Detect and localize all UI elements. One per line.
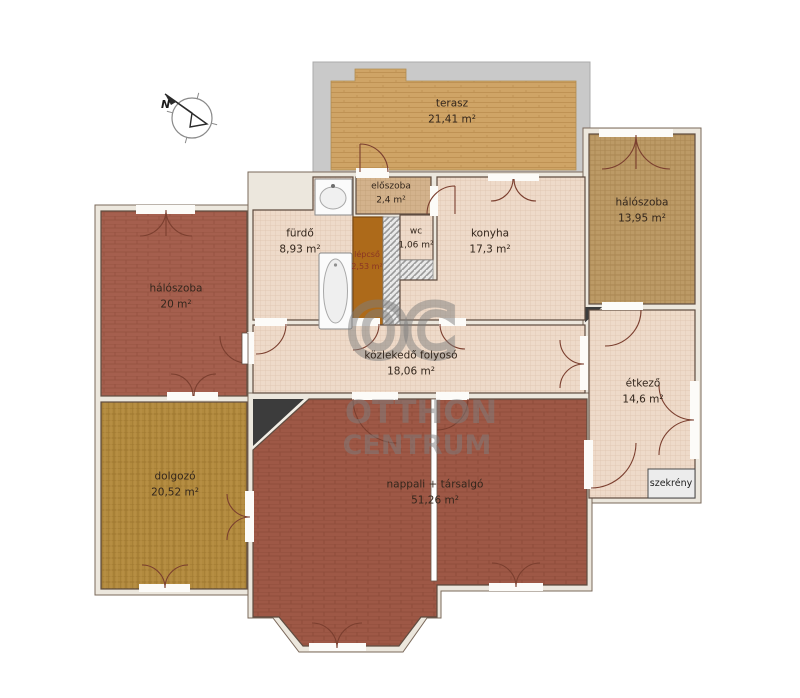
shaft-hatch-horizontal — [400, 260, 433, 280]
watermark-line2: CENTRUM — [343, 430, 492, 461]
compass-icon: N — [160, 86, 224, 150]
room-label-wc: wc1,06 m² — [398, 226, 433, 253]
room-label-lepcso: lépcső2,53 m² — [351, 249, 382, 273]
room-label-szekreny: szekrény — [650, 477, 692, 491]
room-label-terasz: terasz21,41 m² — [428, 96, 476, 128]
floor-plan: OC OTTHON CENTRUM N terasz21,41 m² hálós… — [0, 0, 800, 698]
washbasin — [315, 179, 352, 215]
room-label-halo20: hálószoba20 m² — [150, 281, 203, 313]
watermark-line1: OTTHON — [345, 393, 497, 431]
compass-north-label: N — [161, 98, 170, 111]
room-label-halo13: hálószoba13,95 m² — [616, 195, 669, 227]
room-label-konyha: konyha17,3 m² — [469, 226, 510, 258]
room-label-eloszoba: előszoba2,4 m² — [371, 181, 411, 208]
room-label-nappali: nappali + társalgó51,26 m² — [387, 477, 484, 509]
room-label-furdo: fürdő8,93 m² — [279, 226, 320, 258]
room-label-folyoso: közlekedő folyosó18,06 m² — [364, 348, 457, 380]
room-label-dolgozo: dolgozó20,52 m² — [151, 469, 199, 501]
door-leaf — [242, 333, 248, 364]
room-label-etkezo: étkező14,6 m² — [622, 376, 663, 408]
bathtub — [319, 253, 352, 329]
